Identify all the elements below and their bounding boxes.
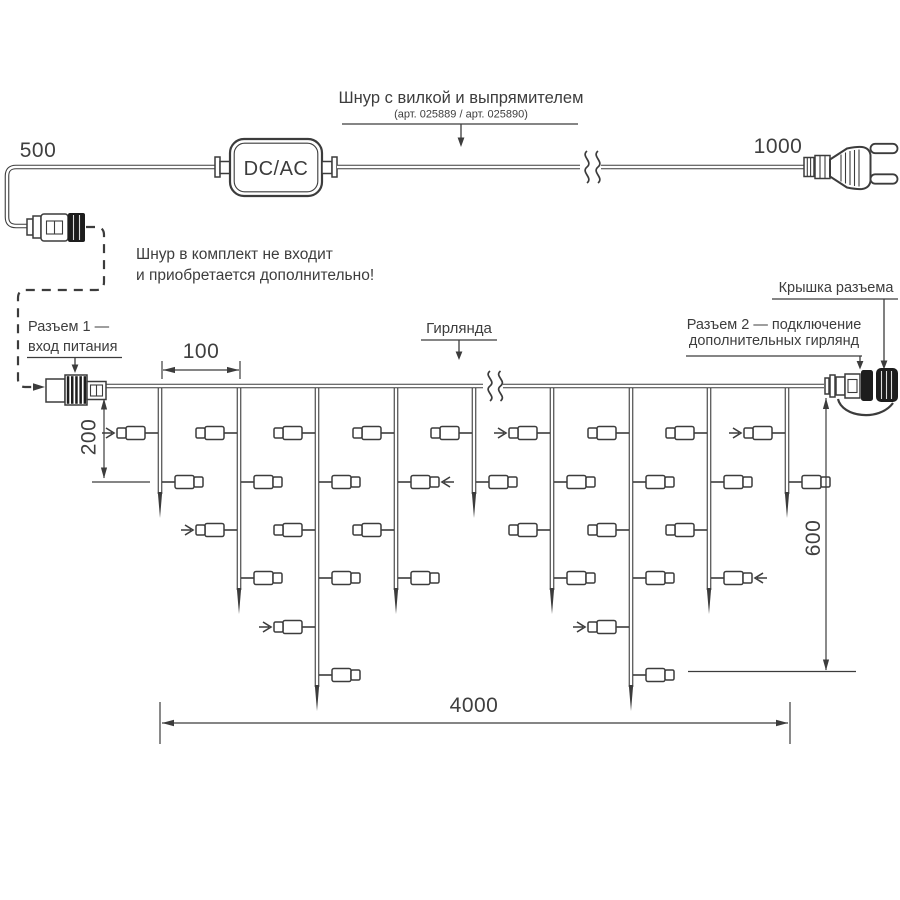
- lamp-direction-arrow: [755, 573, 767, 583]
- lamp-tip: [743, 477, 752, 487]
- drop-wire-tip: [315, 685, 319, 711]
- connector-2: [825, 368, 898, 415]
- lamp-tip: [665, 670, 674, 680]
- drop-wire-tip: [629, 685, 633, 711]
- lamp-tip: [508, 477, 517, 487]
- lamp-tip: [430, 573, 439, 583]
- lamp-tip: [743, 573, 752, 583]
- lamp-tip: [273, 477, 282, 487]
- lamp-tip: [353, 428, 362, 438]
- drop-wire-tip: [394, 588, 398, 614]
- lamp-tip: [274, 428, 283, 438]
- lamp-direction-arrow: [181, 525, 193, 535]
- lamp-body: [362, 524, 381, 537]
- lamp-tip: [666, 428, 675, 438]
- lamp-body: [332, 669, 351, 682]
- lamp-direction-arrow: [494, 428, 506, 438]
- drop-wire-tip: [237, 588, 241, 614]
- lamp-body: [283, 524, 302, 537]
- lamp-body: [597, 427, 616, 440]
- lamp-body: [254, 572, 273, 585]
- drop-wire-tip: [158, 492, 162, 518]
- lamp-body: [675, 524, 694, 537]
- dim-4000: 4000: [450, 694, 499, 717]
- drop-wire-tip: [785, 492, 789, 518]
- lamp-tip: [665, 477, 674, 487]
- lamp-tip: [274, 622, 283, 632]
- cord-end-connector: [27, 213, 85, 242]
- drop-wire-tip: [707, 588, 711, 614]
- lamp-tip: [117, 428, 126, 438]
- lamp-body: [283, 427, 302, 440]
- garland-section: Разъем 1 — вход питания 100 Гирлянда Кры…: [27, 280, 898, 744]
- lamp-tip: [509, 525, 518, 535]
- lamp-body: [646, 572, 665, 585]
- lamp-tip: [586, 573, 595, 583]
- lamp-tip: [196, 428, 205, 438]
- dim-1000: 1000: [754, 135, 803, 158]
- lamp-body: [411, 476, 430, 489]
- garland-label: Гирлянда: [426, 320, 492, 337]
- dim-200: 200: [78, 419, 101, 456]
- lamp-body: [332, 572, 351, 585]
- lamp-body: [646, 476, 665, 489]
- plug-prong: [871, 144, 898, 153]
- garland-callout: Гирлянда: [421, 320, 497, 360]
- lamp-body: [518, 427, 537, 440]
- lamp-direction-arrow: [259, 622, 271, 632]
- lamp-body: [254, 476, 273, 489]
- lamp-tip: [588, 525, 597, 535]
- lamp-tip: [351, 573, 360, 583]
- garland-wire: [106, 371, 824, 401]
- dim-4000-total: 4000: [160, 694, 790, 744]
- dim-500: 500: [20, 139, 57, 162]
- lamp-direction-arrow: [729, 428, 741, 438]
- plug-prong: [871, 174, 898, 183]
- lamp-body: [205, 524, 224, 537]
- dim-600: 600: [802, 520, 825, 557]
- lamp-tip: [196, 525, 205, 535]
- diagram-canvas: 500 DC/AC 100: [0, 0, 900, 900]
- adapter-label: DC/AC: [244, 158, 309, 180]
- lamp-body: [567, 572, 586, 585]
- lamp-body: [724, 476, 743, 489]
- lamp-tip: [273, 573, 282, 583]
- lamp-body: [753, 427, 772, 440]
- cord-note: Шнур в комплект не входит и приобретаетс…: [136, 246, 374, 284]
- connector1-label-line2: вход питания: [28, 339, 117, 355]
- drop-wire-tip: [472, 492, 476, 518]
- lamp-tip: [744, 428, 753, 438]
- cord-callout: Шнур с вилкой и выпрямителем (арт. 02588…: [339, 89, 584, 147]
- lamp-body: [675, 427, 694, 440]
- lamp-body: [597, 621, 616, 634]
- lamp-tip: [666, 525, 675, 535]
- lamp-body: [283, 621, 302, 634]
- lamp-tip: [353, 525, 362, 535]
- cord-callout-subtitle: (арт. 025889 / арт. 025890): [394, 109, 528, 121]
- dashed-path-arrowhead: [33, 383, 45, 390]
- lamp-tip: [194, 477, 203, 487]
- lamp-body: [175, 476, 194, 489]
- lamp-body: [362, 427, 381, 440]
- cap-label: Крышка разъема: [779, 280, 895, 296]
- connector2-label-line2: дополнительных гирлянд: [689, 333, 860, 349]
- euro-plug: [804, 144, 898, 189]
- lamp-body: [567, 476, 586, 489]
- note-line-1: Шнур в комплект не входит: [136, 246, 333, 263]
- dim-100: 100: [183, 340, 220, 363]
- drop-wire-tip: [550, 588, 554, 614]
- connector-cap: [876, 368, 898, 402]
- connector1-callout: Разъем 1 — вход питания: [27, 319, 122, 373]
- connector-1: [46, 375, 106, 405]
- lamp-body: [724, 572, 743, 585]
- lamp-body: [518, 524, 537, 537]
- dashed-connection-path: [18, 227, 104, 387]
- lamp-direction-arrow: [442, 477, 454, 487]
- lamp-tip: [588, 428, 597, 438]
- lamp-body: [205, 427, 224, 440]
- lamp-tip: [665, 573, 674, 583]
- lamp-tip: [430, 477, 439, 487]
- dc-ac-adapter: DC/AC: [215, 139, 337, 196]
- connector2-label-line1: Разъем 2 — подключение: [687, 317, 862, 333]
- garland-drops: [102, 388, 830, 711]
- lamp-tip: [431, 428, 440, 438]
- lamp-tip: [351, 670, 360, 680]
- icicle-garland-spec-diagram: 500 DC/AC 100: [0, 0, 900, 900]
- cord-callout-title: Шнур с вилкой и выпрямителем: [339, 89, 584, 107]
- connector1-label-line1: Разъем 1 —: [28, 319, 110, 335]
- lamp-body: [332, 476, 351, 489]
- lamp-body: [802, 476, 821, 489]
- lamp-tip: [586, 477, 595, 487]
- lamp-body: [411, 572, 430, 585]
- lamp-tip: [509, 428, 518, 438]
- lamp-direction-arrow: [573, 622, 585, 632]
- note-line-2: и приобретается дополнительно!: [136, 267, 374, 284]
- dim-100-spacing: 100: [162, 340, 240, 379]
- lamp-body: [440, 427, 459, 440]
- lamp-body: [126, 427, 145, 440]
- lamp-body: [597, 524, 616, 537]
- lamp-tip: [588, 622, 597, 632]
- lamp-body: [489, 476, 508, 489]
- lamp-body: [646, 669, 665, 682]
- lamp-tip: [351, 477, 360, 487]
- connector2-callout: Разъем 2 — подключение дополнительных ги…: [686, 317, 863, 370]
- lamp-tip: [274, 525, 283, 535]
